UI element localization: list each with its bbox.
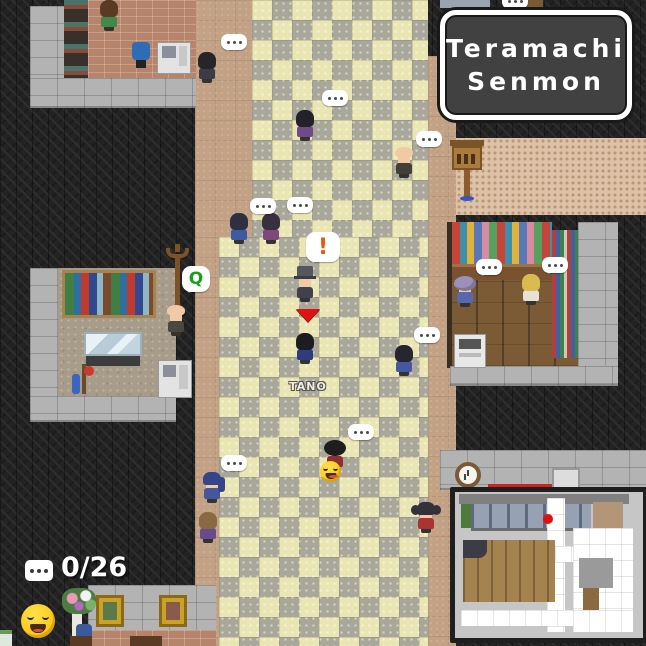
clipped-speech-bubble <box>502 0 528 9</box>
npc-mid-street-speech-bubble <box>414 327 440 343</box>
player-position-arrow <box>296 309 320 322</box>
npc-shop-clerk[interactable] <box>98 0 120 32</box>
shop-lm-desk <box>158 360 192 398</box>
speech-bubble-icon[interactable] <box>25 560 53 581</box>
npc-pair-right-speech-bubble <box>287 197 313 213</box>
npc-blonde-clerk[interactable] <box>520 274 542 306</box>
player-name-label: TANO <box>280 380 336 393</box>
npc-granny-perm-speech-bubble <box>476 259 502 275</box>
framed-portrait-left <box>96 595 124 627</box>
minimap-tan-block <box>593 502 623 528</box>
tiled-street-top <box>252 0 428 237</box>
npc-ponytail-blue-speech-bubble <box>221 455 247 471</box>
smiley-mask-mouth <box>325 473 336 479</box>
framed-portrait-right <box>159 595 187 627</box>
minimap-storefronts <box>471 504 591 531</box>
emoji-mouth <box>30 624 46 633</box>
merchandise-shelves <box>452 222 552 264</box>
npc-pigtails-red[interactable] <box>415 502 437 534</box>
minimap-trees <box>461 504 471 528</box>
npc-old-man[interactable] <box>165 305 187 337</box>
npc-guide-tophat[interactable] <box>294 271 316 303</box>
location-name-line1: Teramachi <box>446 36 626 61</box>
emoji-left-eye <box>27 613 34 620</box>
location-name-plate: Teramachi Senmon <box>440 10 632 120</box>
smiley-mask-left-eye <box>323 465 328 471</box>
npc-pair-left-speech-bubble <box>250 198 276 214</box>
post-shadow <box>460 196 474 201</box>
gravel-yard <box>456 138 646 215</box>
npc-street-upper[interactable] <box>294 110 316 142</box>
wall-clock <box>455 462 481 488</box>
emoji-right-eye <box>42 613 49 620</box>
side-bookshelf <box>552 230 578 358</box>
display-case <box>84 332 142 366</box>
npc-afro-smiley-speech-bubble <box>348 424 374 440</box>
rooftop-sliver <box>440 0 490 8</box>
player-tano[interactable] <box>294 333 316 365</box>
vending-machine <box>454 334 486 368</box>
minimap-gray-block <box>579 558 613 588</box>
npc-street-upper-speech-bubble <box>322 90 348 106</box>
game-viewport: Teramachi Senmon 0/26 TANO !Q <box>0 0 646 646</box>
npc-guide-tophat-speech-bubble: ! <box>306 232 340 262</box>
npc-old-man-speech-bubble: Q <box>182 266 210 292</box>
npc-ponytail-blue[interactable] <box>201 472 223 504</box>
npc-monk[interactable] <box>393 147 415 179</box>
npc-pair-right[interactable] <box>260 213 282 245</box>
npc-mid-street[interactable] <box>393 345 415 377</box>
umbrella-stand <box>70 364 94 398</box>
shop-tl-shelf <box>64 0 88 78</box>
shop-rm-wall-bottom <box>450 366 618 386</box>
post-roof <box>450 140 484 146</box>
chat-counter: 0/26 <box>61 552 127 583</box>
npc-lower-left[interactable] <box>197 512 219 544</box>
corner-plant <box>0 630 12 646</box>
office-chair <box>130 42 154 70</box>
shop-lm-wall-left <box>30 268 58 400</box>
npc-street-top-speech-bubble <box>221 34 247 50</box>
npc-granny-perm[interactable] <box>454 276 476 308</box>
bookshelf <box>62 270 156 318</box>
flower-arrangement <box>62 588 98 646</box>
post-pole <box>464 166 470 200</box>
npc-monk-speech-bubble <box>416 131 442 147</box>
minimap-corridor-bottom <box>461 610 633 626</box>
minimap-player-dot <box>543 514 553 524</box>
smiley-mask <box>320 461 341 482</box>
notice-post <box>450 140 484 202</box>
minimap-dark-block <box>463 540 487 558</box>
minimap[interactable] <box>450 487 646 643</box>
shop-tl-wall-bottom <box>30 78 196 108</box>
npc-street-top[interactable] <box>196 52 218 84</box>
shop-rm-wall-right <box>578 222 618 384</box>
smiley-mask-right-eye <box>333 465 338 471</box>
location-name-line2: Senmon <box>467 69 605 94</box>
npc-blonde-clerk-speech-bubble <box>542 257 568 273</box>
computer-desk <box>157 42 191 74</box>
shop-lm-wall-bottom <box>30 396 176 422</box>
npc-pair-left[interactable] <box>228 213 250 245</box>
laughing-emoji-button[interactable] <box>21 604 55 638</box>
post-house <box>452 146 482 170</box>
room-bl-table <box>130 636 162 646</box>
